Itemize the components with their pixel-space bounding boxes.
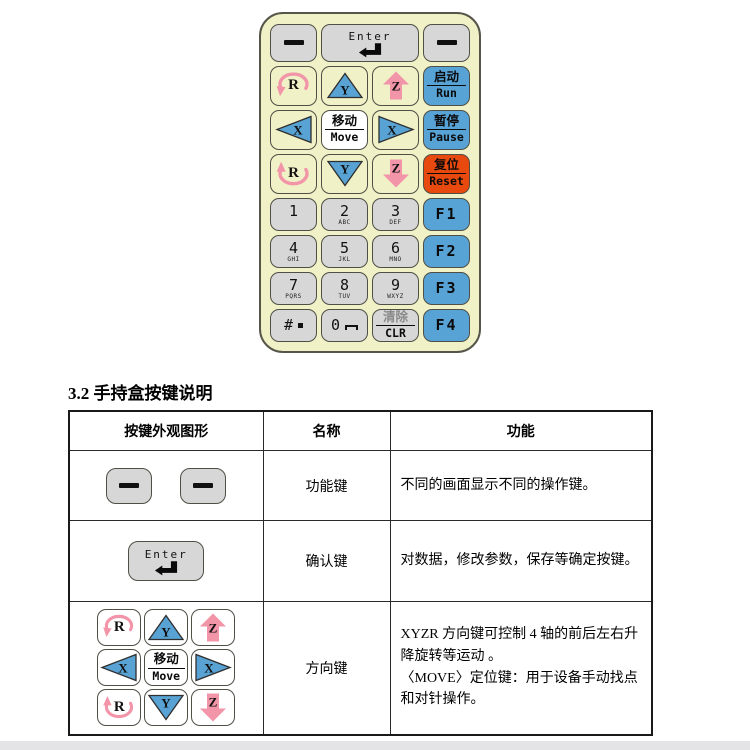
key-z-down: Z [372,154,419,194]
return-arrow-icon [146,560,186,576]
section-heading: 3.2 手持盒按键说明 [68,379,213,404]
triangle-right-icon: X [376,114,416,145]
key-0: 0 [321,309,368,342]
return-arrow-icon [350,42,390,58]
f1-label: F1 [435,205,457,223]
x-left-label: X [293,123,303,138]
key-x-right: X [372,110,419,150]
r-cw-label: R [288,165,299,182]
digit-label: 4 [289,241,298,256]
zero-label: 0 [331,316,340,334]
key-f1: F1 [423,198,470,231]
y-down-label: Y [162,696,172,711]
clear-label-en: CLR [385,326,406,342]
triangle-right-icon: X [193,652,233,683]
table-row: 功能键 不同的画面显示不同的操作键。 [69,451,652,521]
table-row: R Y Z X [69,602,652,735]
enter-key-image-cell: Enter [69,521,263,602]
digit-label: 3 [391,204,400,219]
enter-key-label: Enter [145,549,188,560]
triangle-down-icon: Y [146,692,186,723]
key-z-up-image: Z [191,609,235,646]
function-text-line: 〈MOVE〉定位键：用于设备手动找点和对针操作。 [401,668,642,711]
clear-label-cn: 清除 [376,309,415,326]
key-r-ccw-image: R [97,609,141,646]
dash-icon [284,40,304,45]
arrow-up-icon: Z [376,70,416,101]
x-right-label: X [205,661,215,676]
z-up-label: Z [391,79,400,94]
digit-letters: DEF [389,220,401,227]
arrow-down-icon: Z [193,692,233,723]
move-label-en: Move [331,130,359,146]
key-x-left: X [270,110,317,150]
triangle-left-icon: X [274,114,314,145]
dash-icon [193,483,213,488]
key-y-down: Y [321,154,368,194]
digit-letters: ABC [338,220,350,227]
key-f4: F4 [423,309,470,342]
key-clear: 清除 CLR [372,309,419,342]
digit-letters: TUV [338,294,350,301]
key-x-left-image: X [97,649,141,686]
z-down-label: Z [209,695,218,710]
dash-icon [437,40,457,45]
row-function: XYZR 方向键可控制 4 轴的前后左右升降旋转等运动 。 〈MOVE〉定位键：… [390,602,652,735]
digit-label: 8 [340,278,349,293]
key-7: 7 PQRS [270,272,317,305]
key-pause: 暂停 Pause [423,110,470,150]
hash-label: # [284,316,293,334]
f2-label: F2 [435,242,457,260]
r-ccw-label: R [114,619,125,636]
key-z-up: Z [372,66,419,106]
run-label-en: Run [436,86,457,102]
move-label-en: Move [152,669,180,685]
key-4: 4 GHI [270,235,317,268]
row-name: 方向键 [263,602,390,735]
key-9: 9 WXYZ [372,272,419,305]
function-key-left [270,24,317,62]
key-r-cw: R [270,154,317,194]
z-up-label: Z [209,621,218,636]
header-appearance: 按键外观图形 [69,411,263,451]
row-function: 不同的画面显示不同的操作键。 [390,451,652,521]
enter-key: Enter [321,24,419,62]
triangle-up-icon: Y [146,612,186,643]
reset-label-en: Reset [429,174,464,190]
digit-label: 1 [289,204,298,219]
pause-label-cn: 暂停 [427,113,466,130]
move-label-cn: 移动 [148,651,185,668]
function-key-image [180,468,226,504]
enter-key-image: Enter [128,541,204,581]
function-key-right [423,24,470,62]
digit-label: 9 [391,278,400,293]
key-3: 3 DEF [372,198,419,231]
digit-label: 6 [391,241,400,256]
header-name: 名称 [263,411,390,451]
digit-label: 7 [289,278,298,293]
row-name: 确认键 [263,521,390,602]
key-y-up: Y [321,66,368,106]
direction-keys-image-cell: R Y Z X [69,602,263,735]
key-run: 启动 Run [423,66,470,106]
digit-letters: WXYZ [387,294,403,301]
table-header-row: 按键外观图形 名称 功能 [69,411,652,451]
r-ccw-label: R [288,77,299,94]
y-up-label: Y [340,83,350,98]
triangle-up-icon: Y [325,70,365,101]
key-z-down-image: Z [191,689,235,726]
button-description-table: 按键外观图形 名称 功能 功能键 不同的画面显示不同的操作键。 Enter [68,410,653,736]
key-move: 移动 Move [321,110,368,150]
run-label-cn: 启动 [427,69,466,86]
key-x-right-image: X [191,649,235,686]
triangle-down-icon: Y [325,158,365,189]
f4-label: F4 [435,316,457,334]
key-f3: F3 [423,272,470,305]
key-2: 2 ABC [321,198,368,231]
x-left-label: X [119,661,129,676]
y-down-label: Y [340,162,350,177]
arrow-up-icon: Z [193,612,233,643]
triangle-left-icon: X [99,652,139,683]
page-bottom-strip [0,741,750,750]
y-up-label: Y [162,625,172,640]
key-f2: F2 [423,235,470,268]
key-y-up-image: Y [144,609,188,646]
function-text-line: XYZR 方向键可控制 4 轴的前后左右升降旋转等运动 。 [401,624,642,667]
reset-label-cn: 复位 [427,157,466,174]
space-icon [345,325,358,330]
key-r-ccw: R [270,66,317,106]
handheld-keypad: Enter R Y Z 启动 Run X [259,12,481,353]
table-row: Enter 确认键 对数据，修改参数，保存等确定按键。 [69,521,652,602]
key-6: 6 MNO [372,235,419,268]
digit-letters: GHI [287,257,299,264]
f3-label: F3 [435,279,457,297]
header-function: 功能 [390,411,652,451]
x-right-label: X [387,123,397,138]
dot-icon [298,323,303,328]
digit-label: 2 [340,204,349,219]
row-name: 功能键 [263,451,390,521]
dash-icon [119,483,139,488]
key-reset: 复位 Reset [423,154,470,194]
z-down-label: Z [391,161,400,176]
arrow-down-icon: Z [376,158,416,189]
function-keys-image-cell [69,451,263,521]
move-label-cn: 移动 [325,113,365,130]
pause-label-en: Pause [429,130,464,146]
digit-letters: JKL [338,257,350,264]
key-5: 5 JKL [321,235,368,268]
function-key-image [106,468,152,504]
digit-label: 5 [340,241,349,256]
key-move-image: 移动 Move [144,649,188,686]
key-8: 8 TUV [321,272,368,305]
key-y-down-image: Y [144,689,188,726]
r-cw-label: R [114,699,125,716]
digit-letters: PQRS [285,294,301,301]
key-1: 1 [270,198,317,231]
key-r-cw-image: R [97,689,141,726]
key-hash: # [270,309,317,342]
digit-letters: MNO [389,257,401,264]
enter-key-label: Enter [348,31,391,42]
row-function: 对数据，修改参数，保存等确定按键。 [390,521,652,602]
